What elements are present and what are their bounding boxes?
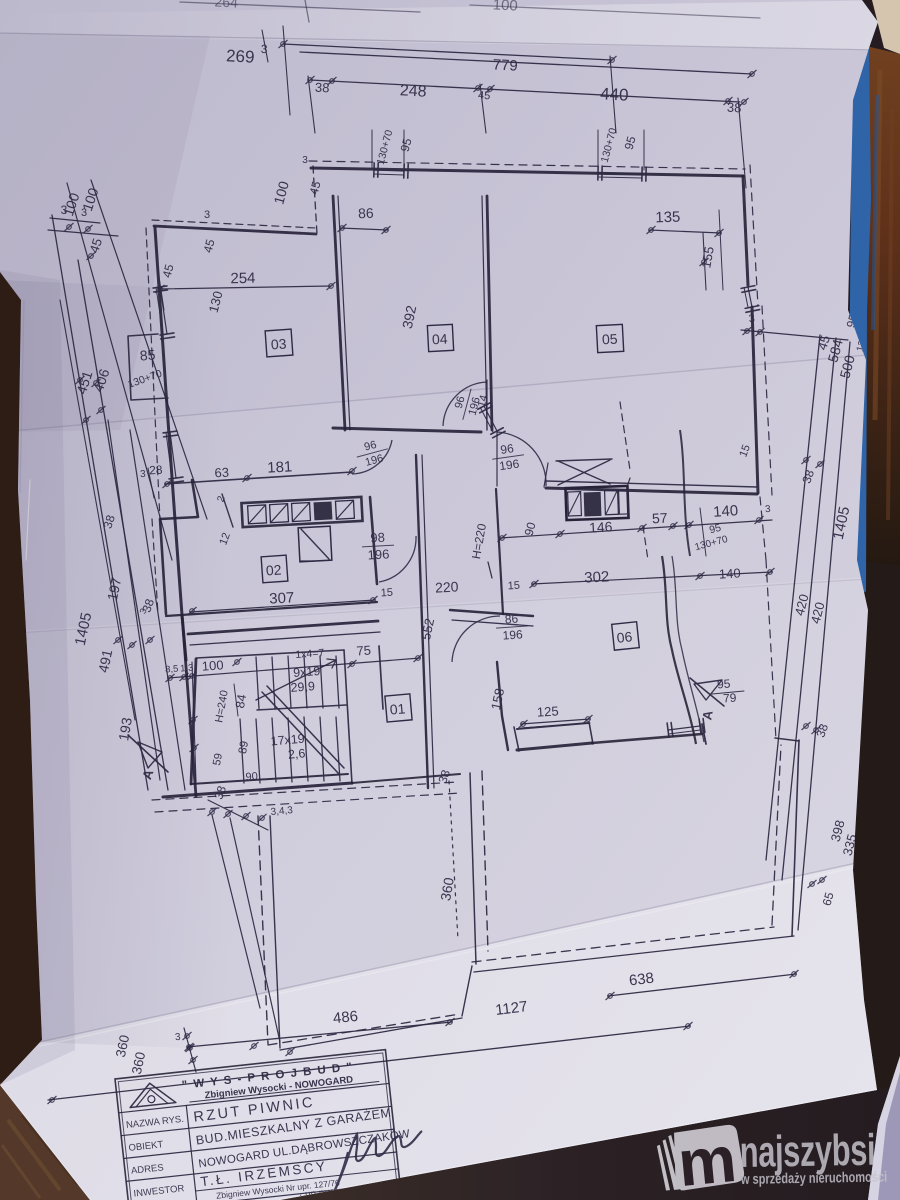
svg-text:196: 196: [502, 627, 523, 642]
svg-text:15: 15: [380, 587, 393, 600]
svg-text:779: 779: [492, 56, 518, 74]
svg-text:125: 125: [537, 703, 559, 719]
svg-text:486: 486: [332, 1008, 359, 1028]
svg-text:181: 181: [267, 458, 293, 476]
svg-text:90: 90: [245, 771, 258, 784]
svg-text:264: 264: [214, 0, 238, 11]
svg-text:03: 03: [270, 335, 287, 352]
svg-text:28: 28: [149, 463, 163, 478]
svg-text:75: 75: [356, 643, 371, 659]
svg-text:1x4=7: 1x4=7: [295, 647, 325, 661]
svg-text:220: 220: [435, 578, 459, 595]
svg-text:04: 04: [432, 331, 449, 348]
svg-text:140: 140: [719, 565, 741, 581]
svg-text:38: 38: [315, 80, 330, 96]
svg-text:29,9: 29,9: [290, 679, 315, 695]
svg-text:248: 248: [399, 82, 427, 100]
svg-text:57: 57: [652, 510, 669, 527]
svg-text:m: m: [675, 1122, 740, 1200]
svg-text:3,4,3: 3,4,3: [270, 805, 294, 818]
svg-text:86: 86: [358, 205, 374, 222]
svg-text:15: 15: [507, 580, 520, 593]
svg-text:9x19: 9x19: [293, 664, 321, 680]
svg-text:96: 96: [499, 441, 514, 457]
svg-text:8,5: 8,5: [165, 664, 179, 676]
svg-text:3: 3: [204, 209, 210, 221]
svg-text:86: 86: [504, 612, 519, 627]
svg-text:100: 100: [201, 657, 224, 673]
svg-text:140: 140: [713, 502, 739, 521]
svg-text:01: 01: [389, 700, 406, 717]
svg-text:307: 307: [269, 589, 295, 607]
svg-text:3: 3: [748, 313, 755, 325]
svg-text:146: 146: [589, 518, 613, 535]
svg-text:269: 269: [226, 46, 255, 66]
svg-text:63: 63: [214, 465, 229, 481]
svg-text:100: 100: [492, 0, 518, 15]
svg-text:02: 02: [265, 561, 282, 578]
svg-text:254: 254: [230, 270, 255, 287]
svg-text:638: 638: [628, 970, 655, 990]
svg-text:135: 135: [655, 209, 681, 227]
svg-text:59: 59: [211, 752, 225, 766]
svg-text:06: 06: [616, 628, 633, 646]
svg-text:3: 3: [302, 155, 308, 166]
svg-text:w sprzedaży nieruchomości: w sprzedaży nieruchomości: [740, 1168, 887, 1187]
svg-text:196: 196: [367, 546, 389, 562]
svg-text:85: 85: [139, 346, 156, 363]
svg-text:98: 98: [370, 530, 385, 546]
svg-text:05: 05: [602, 331, 619, 348]
svg-text:196: 196: [498, 457, 520, 474]
svg-text:2,6: 2,6: [287, 746, 306, 761]
svg-text:3: 3: [140, 469, 147, 480]
svg-text:440: 440: [600, 84, 629, 104]
svg-text:45: 45: [478, 90, 491, 103]
svg-text:302: 302: [584, 568, 610, 586]
svg-text:89: 89: [237, 740, 251, 755]
